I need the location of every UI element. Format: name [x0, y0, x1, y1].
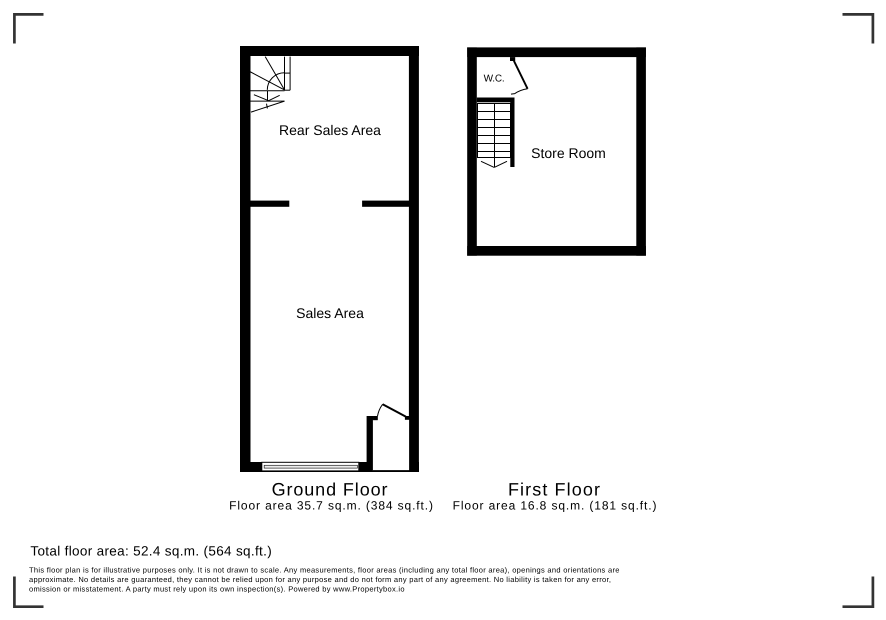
svg-text:First Floor: First Floor — [508, 479, 601, 499]
svg-text:Rear Sales Area: Rear Sales Area — [279, 122, 381, 138]
svg-text:Ground Floor: Ground Floor — [272, 479, 389, 499]
svg-text:Sales Area: Sales Area — [296, 305, 364, 321]
svg-text:omission or misstatement. A pa: omission or misstatement. A party must r… — [29, 584, 405, 593]
svg-text:Floor area 16.8 sq.m. (181 sq.: Floor area 16.8 sq.m. (181 sq.ft.) — [453, 498, 658, 512]
svg-text:approximate. No details are gu: approximate. No details are guaranteed, … — [29, 575, 611, 584]
svg-text:This floor plan is for illustr: This floor plan is for illustrative purp… — [29, 565, 620, 574]
svg-text:Total floor area: 52.4 sq.m. (: Total floor area: 52.4 sq.m. (564 sq.ft.… — [30, 543, 272, 558]
svg-text:W.C.: W.C. — [484, 73, 505, 84]
svg-text:Store Room: Store Room — [531, 145, 606, 161]
svg-text:Floor area 35.7 sq.m. (384 sq.: Floor area 35.7 sq.m. (384 sq.ft.) — [229, 498, 434, 512]
